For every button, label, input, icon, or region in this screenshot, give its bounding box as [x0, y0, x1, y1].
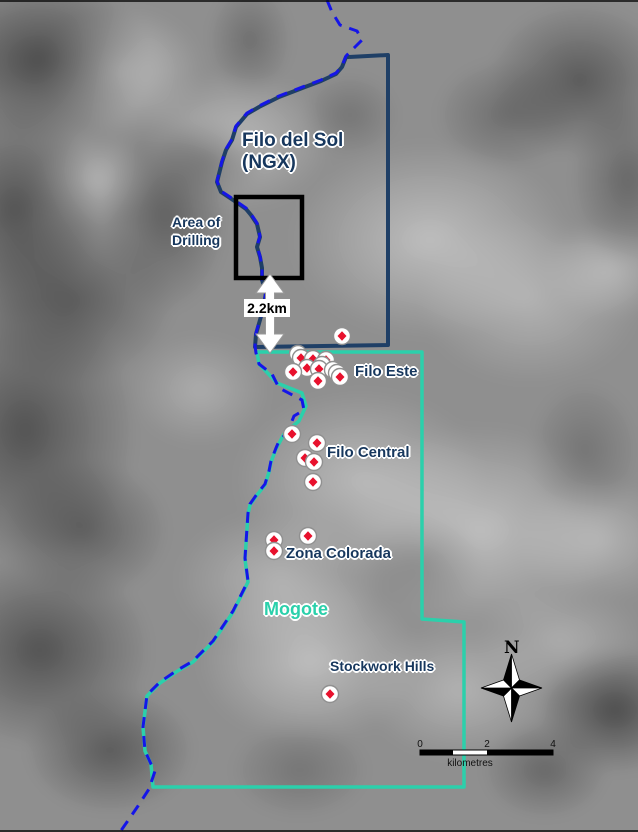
international-border-dashed — [120, 0, 362, 832]
zone-label-zona-colorada: Zona Colorada — [286, 545, 391, 562]
drill-hole-marker — [322, 686, 339, 703]
scale-tick-0: 0 — [417, 739, 423, 750]
scale-units: kilometres — [447, 758, 493, 769]
north-label: N — [504, 638, 520, 658]
scale-bar: 0 2 4 kilometres — [417, 739, 556, 769]
zone-label-mogote: Mogote — [264, 599, 328, 620]
drill-hole-marker — [266, 543, 283, 560]
drill-hole-marker — [310, 373, 327, 390]
drill-hole-marker — [285, 364, 302, 381]
drill-hole-marker — [300, 528, 317, 545]
area-of-drilling-label: Area of Drilling — [172, 213, 220, 249]
drill-hole-marker — [306, 454, 323, 471]
property-title: Filo del Sol (NGX) — [242, 130, 343, 174]
drill-hole-marker — [332, 369, 349, 386]
property-title-line2: (NGX) — [242, 152, 343, 174]
zone-label-stockwork-hills: Stockwork Hills — [330, 658, 434, 674]
map-edge-top — [0, 0, 638, 2]
scale-tick-2: 2 — [484, 739, 490, 750]
property-title-line1: Filo del Sol — [242, 130, 343, 152]
map-canvas[interactable]: 0 2 4 kilometres Filo del Sol (NGX) Area… — [0, 0, 638, 832]
north-arrow-icon — [481, 654, 542, 722]
map-overlay: 0 2 4 kilometres — [0, 0, 638, 832]
drill-hole-marker — [334, 328, 351, 345]
zone-label-filo-este: Filo Este — [355, 363, 418, 380]
drill-hole-marker — [284, 426, 301, 443]
mogote-boundary — [143, 352, 464, 787]
zone-label-filo-central: Filo Central — [327, 444, 410, 461]
drill-hole-marker — [309, 435, 326, 452]
boundary-layer — [120, 0, 464, 832]
distance-label: 2.2km — [244, 299, 290, 317]
drill-hole-marker — [305, 474, 322, 491]
scale-tick-4: 4 — [550, 739, 556, 750]
